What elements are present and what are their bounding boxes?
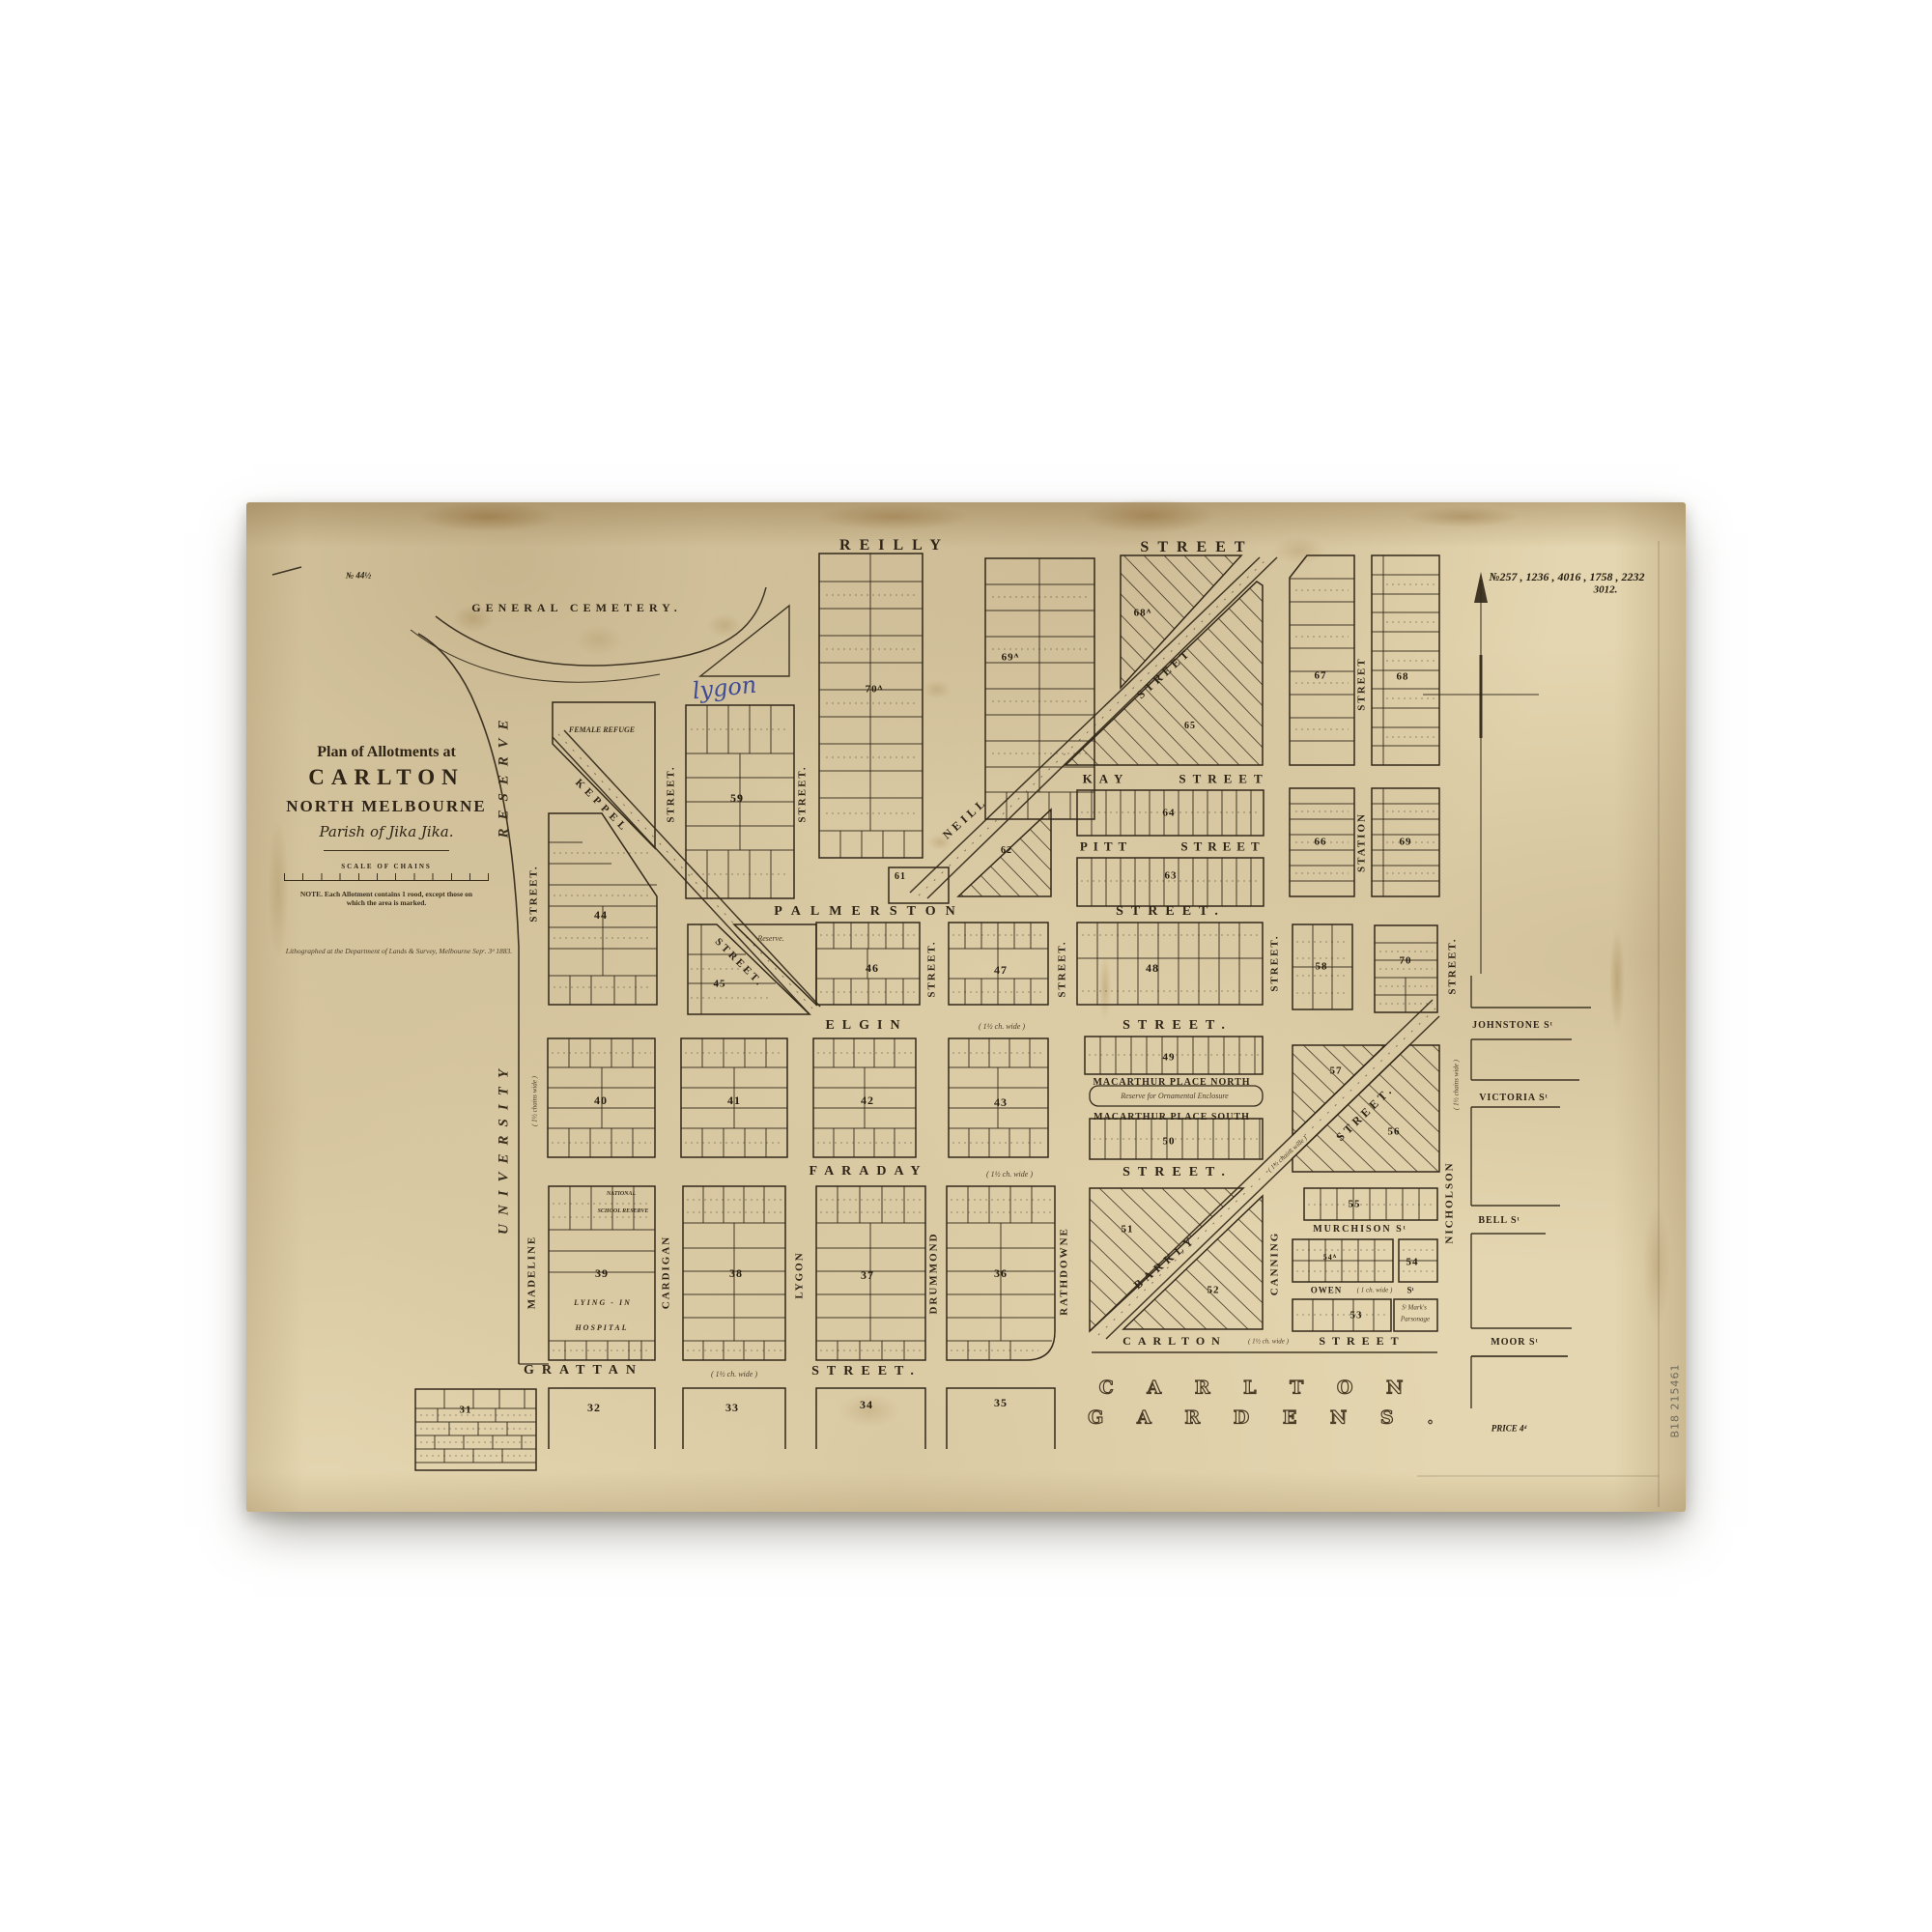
label-block-68: 68 <box>1397 672 1409 683</box>
label-drummond-street: STREET. <box>1058 940 1068 997</box>
scale-caption: SCALE OF CHAINS <box>266 863 507 870</box>
label-grattan-street: STREET. <box>811 1365 922 1378</box>
label-block-63: 63 <box>1165 871 1178 882</box>
label-block-59: 59 <box>730 792 744 804</box>
label-macarthur-reserve: Reserve for Ornamental Enclosure <box>1121 1093 1228 1100</box>
label-murchison: MURCHISON Sᵗ <box>1313 1225 1407 1235</box>
label-station: STATION <box>1357 812 1368 872</box>
label-carlton-st: CARLTON <box>1122 1335 1227 1347</box>
label-bell: BELL Sᵗ <box>1478 1216 1520 1226</box>
label-block-47: 47 <box>994 964 1008 976</box>
label-block-64: 64 <box>1163 809 1176 819</box>
title-block: Plan of Allotments at CARLTON NORTH MELB… <box>266 744 507 907</box>
allotment-note: NOTE. Each Allotment contains 1 rood, ex… <box>266 890 507 907</box>
label-lying-in: LYING - IN <box>574 1299 632 1307</box>
label-carlton-width: ( 1½ ch. wide ) <box>1248 1339 1289 1346</box>
label-owen-width: ( 1 ch. wide ) <box>1357 1288 1393 1294</box>
map-sheet: Plan of Allotments at CARLTON NORTH MELB… <box>246 502 1686 1512</box>
label-block-44: 44 <box>594 909 608 921</box>
allotment-block <box>553 702 655 848</box>
allotment-block <box>415 1389 536 1470</box>
label-general-cemetery: GENERAL CEMETERY. <box>471 602 682 613</box>
allotment-block <box>819 554 923 858</box>
label-owen-st: Sᵗ <box>1407 1287 1414 1295</box>
allotment-block <box>1372 555 1439 765</box>
label-block-69: 69 <box>1400 838 1412 848</box>
label-registry-numbers: №257 , 1236 , 4016 , 1758 , 2232 <box>1490 571 1645 582</box>
label-reilly-street: STREET <box>1140 540 1253 555</box>
label-elgin-width: ( 1½ ch. wide ) <box>979 1023 1025 1031</box>
label-pitt-street: STREET <box>1180 840 1264 853</box>
allotment-note-line1: NOTE. Each Allotment contains 1 rood, ex… <box>300 890 472 898</box>
label-block-35: 35 <box>994 1397 1008 1408</box>
allotment-block <box>1304 1188 1437 1220</box>
label-block-62: 62 <box>1001 846 1012 856</box>
label-registry-number-2: 3012. <box>1594 585 1618 596</box>
label-block-54a: 54ᴬ <box>1323 1254 1337 1262</box>
label-cardigan-street: STREET. <box>667 765 677 822</box>
label-kay: KAY <box>1083 773 1130 785</box>
label-kay-street: STREET <box>1179 773 1268 785</box>
label-block-31: 31 <box>460 1406 472 1416</box>
label-cardigan: CARDIGAN <box>662 1236 672 1310</box>
label-school-reserve: SCHOOL RESERVE <box>598 1208 649 1214</box>
map-subtitle: Plan of Allotments at <box>266 744 507 761</box>
label-carlton-street: STREET <box>1319 1335 1405 1347</box>
label-block-45: 45 <box>714 980 726 990</box>
label-canning: CANNING <box>1270 1232 1281 1296</box>
allotment-block <box>683 1388 785 1449</box>
label-block-55: 55 <box>1349 1200 1361 1210</box>
label-national: NATIONAL <box>607 1191 636 1197</box>
allotment-block <box>549 1388 655 1449</box>
label-carlton-gardens-1: C A R L T O N <box>1099 1379 1417 1398</box>
label-faraday: FARADAY <box>810 1165 928 1179</box>
label-block-52: 52 <box>1207 1286 1220 1296</box>
label-macarthur-place-north: MACARTHUR PLACE NORTH <box>1093 1078 1250 1088</box>
label-block-42: 42 <box>861 1094 874 1106</box>
allotment-block <box>1290 555 1354 765</box>
label-macarthur-place-south: MACARTHUR PLACE SOUTH <box>1094 1113 1250 1122</box>
label-palmerston-street: STREET. <box>1116 905 1226 919</box>
label-elgin: ELGIN <box>825 1019 907 1033</box>
label-grattan: GRATTAN <box>524 1364 643 1378</box>
label-block-48: 48 <box>1146 962 1159 974</box>
label-nicholson-width: ( 1½ chains wide ) <box>1454 1060 1461 1110</box>
allotment-block <box>1293 1239 1393 1282</box>
label-lygon-street: STREET. <box>927 940 938 997</box>
label-block-54: 54 <box>1406 1258 1419 1268</box>
label-university: UNIVERSITY <box>497 1061 512 1235</box>
scale-bar <box>284 873 489 881</box>
label-block-46: 46 <box>866 962 879 974</box>
allotment-block <box>944 695 1686 1484</box>
label-grattan-width: ( 1½ ch. wide ) <box>711 1371 757 1378</box>
label-block-32: 32 <box>587 1402 601 1413</box>
label-block-51: 51 <box>1122 1225 1134 1236</box>
label-block-53: 53 <box>1350 1311 1363 1321</box>
label-canning-street: STREET. <box>1270 934 1281 991</box>
label-barcode: B18 215461 <box>1670 1363 1681 1437</box>
label-reilly: REILLY <box>839 538 950 554</box>
label-price: PRICE 4ᵈ <box>1492 1425 1526 1434</box>
label-madeline-width: ( 1½ chains wide ) <box>532 1076 539 1126</box>
label-moor: MOOR Sᵗ <box>1491 1338 1538 1348</box>
label-block-43: 43 <box>994 1096 1008 1108</box>
map-title-2: NORTH MELBOURNE <box>266 797 507 816</box>
label-block-56: 56 <box>1388 1127 1401 1138</box>
allotment-block <box>1375 925 1437 1012</box>
label-madeline: MADELINE <box>527 1236 538 1310</box>
label-female-refuge: FEMALE REFUGE <box>569 726 635 734</box>
allotment-block <box>985 558 1094 819</box>
map-title: CARLTON <box>266 765 507 790</box>
label-station-street: STREET <box>1357 657 1368 710</box>
label-block-41: 41 <box>727 1094 741 1106</box>
label-block-57: 57 <box>1330 1066 1343 1077</box>
label-corner-mark: № 44½ <box>346 572 371 581</box>
label-block-38: 38 <box>729 1267 743 1279</box>
label-carlton-gardens-2: G A R D E N S . <box>1088 1409 1447 1428</box>
label-block-40: 40 <box>594 1094 608 1106</box>
label-nicholson-street: STREET. <box>1448 937 1459 994</box>
label-street-e-of-59: STREET. <box>798 765 809 822</box>
allotment-block <box>611 502 1400 1248</box>
allotment-note-line2: which the area is marked. <box>347 898 427 907</box>
label-st-marks-2: Parsonage <box>1401 1317 1430 1323</box>
label-rathdowne: RATHDOWNE <box>1060 1227 1070 1316</box>
label-faraday-street: STREET. <box>1122 1166 1233 1179</box>
label-drummond: DRUMMOND <box>929 1232 940 1314</box>
label-block-66: 66 <box>1315 838 1327 848</box>
label-block-39: 39 <box>595 1267 609 1279</box>
allotment-block <box>1293 1299 1391 1331</box>
plan-linework <box>246 502 1686 1512</box>
label-reserve-small: Reserve. <box>757 935 783 943</box>
page: { "colors":{"ink":"#33291a","faded":"#51… <box>0 0 1932 1932</box>
label-victoria: VICTORIA Sᵗ <box>1479 1094 1548 1103</box>
allotment-block <box>1090 1119 1263 1159</box>
allotment-block <box>1077 923 1263 1005</box>
label-block-61: 61 <box>895 872 906 882</box>
label-johnstone: JOHNSTONE Sᵗ <box>1472 1021 1553 1031</box>
label-block-68a: 68ᴬ <box>1134 609 1152 619</box>
label-block-67: 67 <box>1315 671 1327 682</box>
label-elgin-street: STREET. <box>1122 1019 1233 1033</box>
label-palmerston: PALMERSTON <box>774 905 965 919</box>
label-madeline-street: STREET. <box>529 865 540 922</box>
label-pitt: PITT <box>1080 840 1132 853</box>
label-st-marks-1: Sᵗ Mark's <box>1402 1305 1427 1312</box>
title-rule <box>324 850 449 851</box>
allotment-block <box>1077 858 1264 906</box>
label-nicholson: NICHOLSON <box>1445 1161 1456 1243</box>
lithograph-imprint: Lithographed at the Department of Lands … <box>273 947 525 955</box>
label-block-58: 58 <box>1316 962 1328 973</box>
allotment-block <box>792 502 1576 1011</box>
label-faraday-width: ( 1½ ch. wide ) <box>986 1171 1033 1179</box>
label-block-65: 65 <box>1184 722 1196 731</box>
label-block-70a: 70ᴬ <box>866 685 884 696</box>
label-block-36: 36 <box>994 1267 1008 1279</box>
allotment-block <box>776 502 1559 1064</box>
label-university-reserve: RESERVE <box>497 711 512 838</box>
label-lygon: LYGON <box>795 1251 806 1298</box>
label-owen: OWEN <box>1311 1287 1343 1295</box>
label-block-69a: 69ᴬ <box>1002 653 1020 664</box>
label-block-34: 34 <box>860 1399 873 1410</box>
label-lygon-handwriting: lygon <box>692 673 758 703</box>
label-block-70: 70 <box>1400 956 1412 967</box>
parish-line: Parish of Jika Jika. <box>266 823 507 840</box>
label-block-33: 33 <box>725 1402 739 1413</box>
label-block-50: 50 <box>1163 1137 1176 1148</box>
label-hospital: HOSPITAL <box>575 1324 628 1332</box>
label-block-37: 37 <box>861 1269 874 1281</box>
label-block-49: 49 <box>1163 1053 1176 1064</box>
